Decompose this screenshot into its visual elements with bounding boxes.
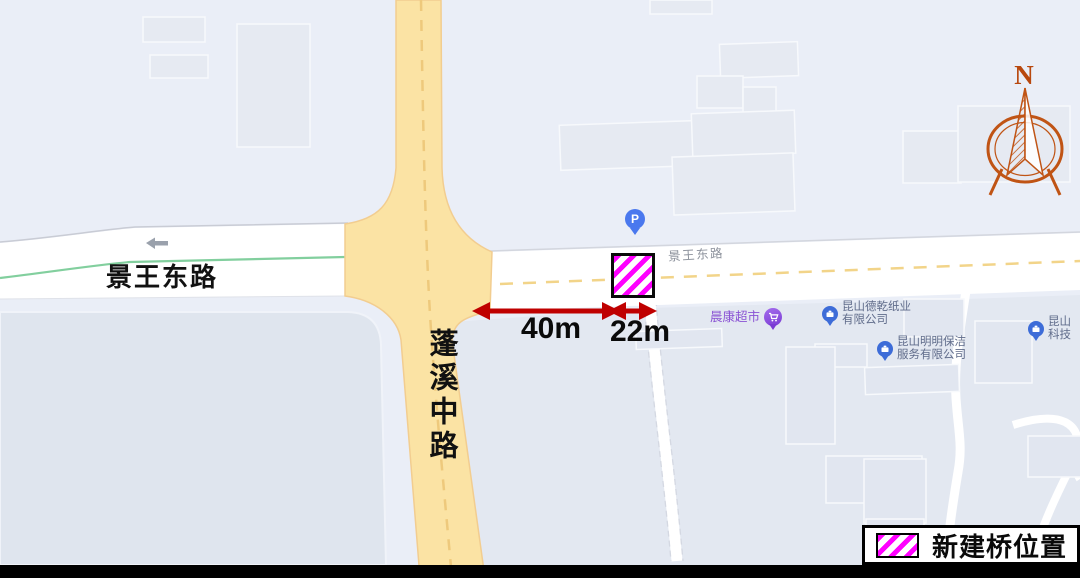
poi-chenkang-supermarket[interactable]: 晨康超市 bbox=[710, 308, 782, 326]
road-label-jingwang-east-west: 景王东路 bbox=[106, 257, 222, 294]
company-icon bbox=[877, 341, 893, 357]
map-annotation-figure: 景王东路 蓬溪中路 景王东路 晨康超市 昆山德乾纸 bbox=[0, 0, 1080, 578]
poi-label: 晨康超市 bbox=[710, 311, 760, 324]
compass-north-icon: N bbox=[982, 57, 1074, 197]
poi-deqian-paper-company[interactable]: 昆山德乾纸业 有限公司 bbox=[822, 301, 911, 327]
letterbox-bar bbox=[0, 565, 1080, 578]
distance-label-22m: 22m bbox=[610, 315, 670, 349]
legend-label: 新建桥位置 bbox=[932, 527, 1067, 564]
distance-label-40m: 40m bbox=[521, 312, 581, 346]
poi-kunshan-tech-company-clipped[interactable]: 昆山 科技 bbox=[1028, 316, 1071, 342]
road-label-jingwang-east: 景王东路 bbox=[667, 242, 724, 264]
legend: 新建桥位置 bbox=[862, 525, 1080, 565]
poi-mingming-cleaning-company[interactable]: 昆山明明保洁 服务有限公司 bbox=[877, 336, 966, 362]
bridge-site-marker bbox=[611, 253, 655, 298]
road-label-pengxi-middle: 蓬溪中路 bbox=[420, 328, 462, 464]
bridge-swatch-icon bbox=[876, 533, 919, 558]
poi-label: 昆山 科技 bbox=[1048, 316, 1071, 342]
company-icon bbox=[822, 306, 838, 322]
poi-label: 昆山明明保洁 服务有限公司 bbox=[897, 336, 966, 362]
parcel-southwest bbox=[0, 312, 386, 565]
cart-icon bbox=[764, 308, 782, 326]
company-icon bbox=[1028, 321, 1044, 337]
poi-label: 昆山德乾纸业 有限公司 bbox=[842, 301, 911, 327]
compass-north-label: N bbox=[1014, 60, 1034, 90]
parking-icon[interactable]: P bbox=[625, 209, 645, 235]
parking-letter: P bbox=[625, 209, 645, 229]
